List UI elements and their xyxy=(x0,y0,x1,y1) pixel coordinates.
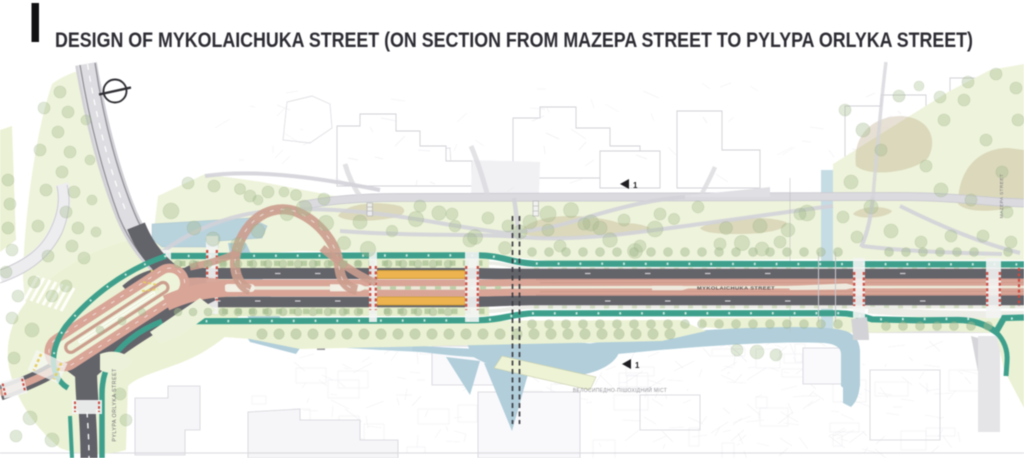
svg-text:ВЕЛОСИПЕДНО-ПІШОХІДНИЙ МІСТ: ВЕЛОСИПЕДНО-ПІШОХІДНИЙ МІСТ xyxy=(573,386,667,394)
svg-text:1: 1 xyxy=(633,181,638,190)
svg-text:DESIGN OF MYKOLAICHUKA STREET: DESIGN OF MYKOLAICHUKA STREET (ON SECTIO… xyxy=(55,28,973,52)
svg-text:MYKOLAICHUKA STREET: MYKOLAICHUKA STREET xyxy=(697,286,775,291)
svg-text:1: 1 xyxy=(635,361,640,370)
svg-text:MAZEPA STREET: MAZEPA STREET xyxy=(999,174,1005,219)
svg-text:PYLYPA ORLYKA STREET: PYLYPA ORLYKA STREET xyxy=(112,368,118,442)
